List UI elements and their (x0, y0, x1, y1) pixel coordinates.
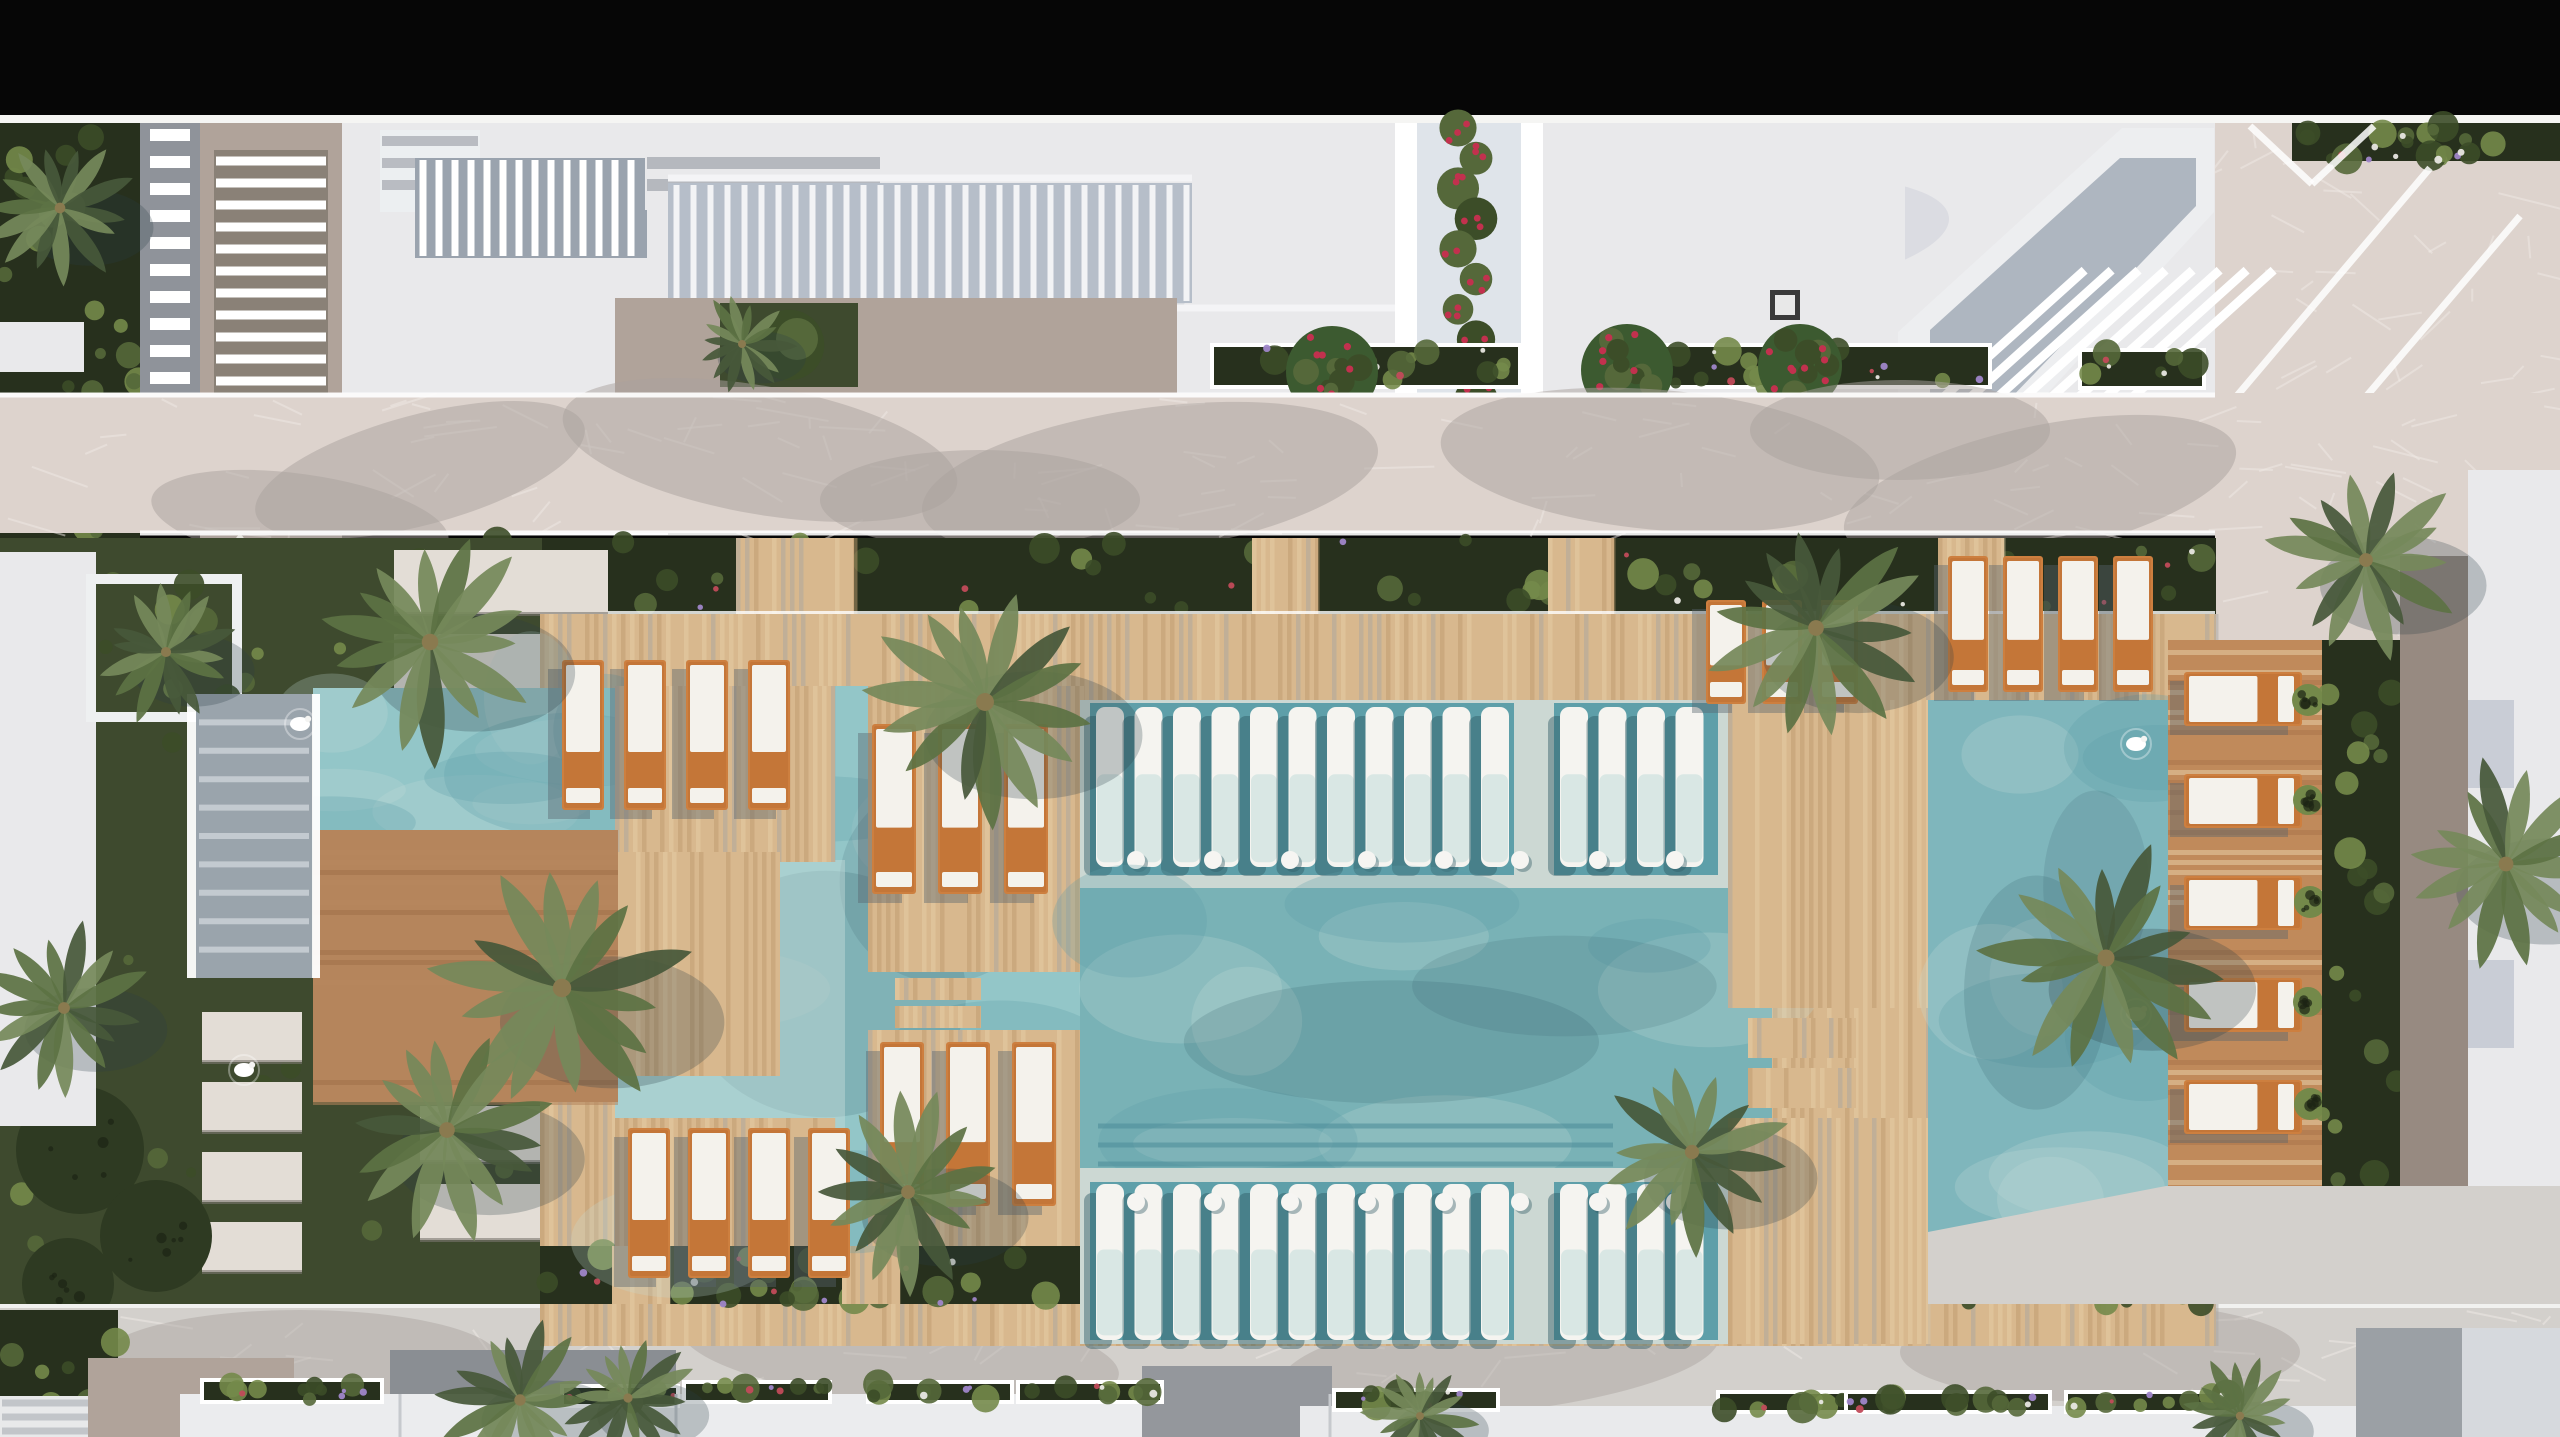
pergola-top (415, 158, 647, 258)
in-water-loungers-north-a (1084, 707, 1509, 876)
left-pool-jetty-step-1 (895, 978, 981, 1000)
deck-connector-top-2 (1252, 538, 1320, 614)
terrace-wall-art (1770, 290, 1800, 320)
marble-stairs-left (187, 694, 320, 978)
pool-complex-aerial-render (0, 0, 2560, 1437)
in-water-loungers-north-b (1548, 707, 1704, 876)
letterbox-hairline (0, 115, 2560, 123)
white-wing-far-left (0, 322, 84, 372)
deck-connector-top-3 (1548, 538, 1616, 614)
left-pool-jetty-step-2 (895, 1006, 981, 1028)
east-jetty-step-2 (1748, 1068, 1856, 1108)
east-jetty-step-1 (1748, 1018, 1856, 1058)
balcony-railing-band (668, 183, 1192, 303)
pergola-bottom-left (0, 1396, 92, 1437)
deck-connector-top-1 (736, 538, 858, 614)
white-edge-bottom-right (2462, 1328, 2560, 1437)
screenshot-root (0, 0, 2560, 1437)
east-deck-peninsula (1728, 700, 1931, 1008)
right-building-notch-2 (2468, 960, 2514, 1048)
east-garden-strip (2316, 640, 2408, 1189)
